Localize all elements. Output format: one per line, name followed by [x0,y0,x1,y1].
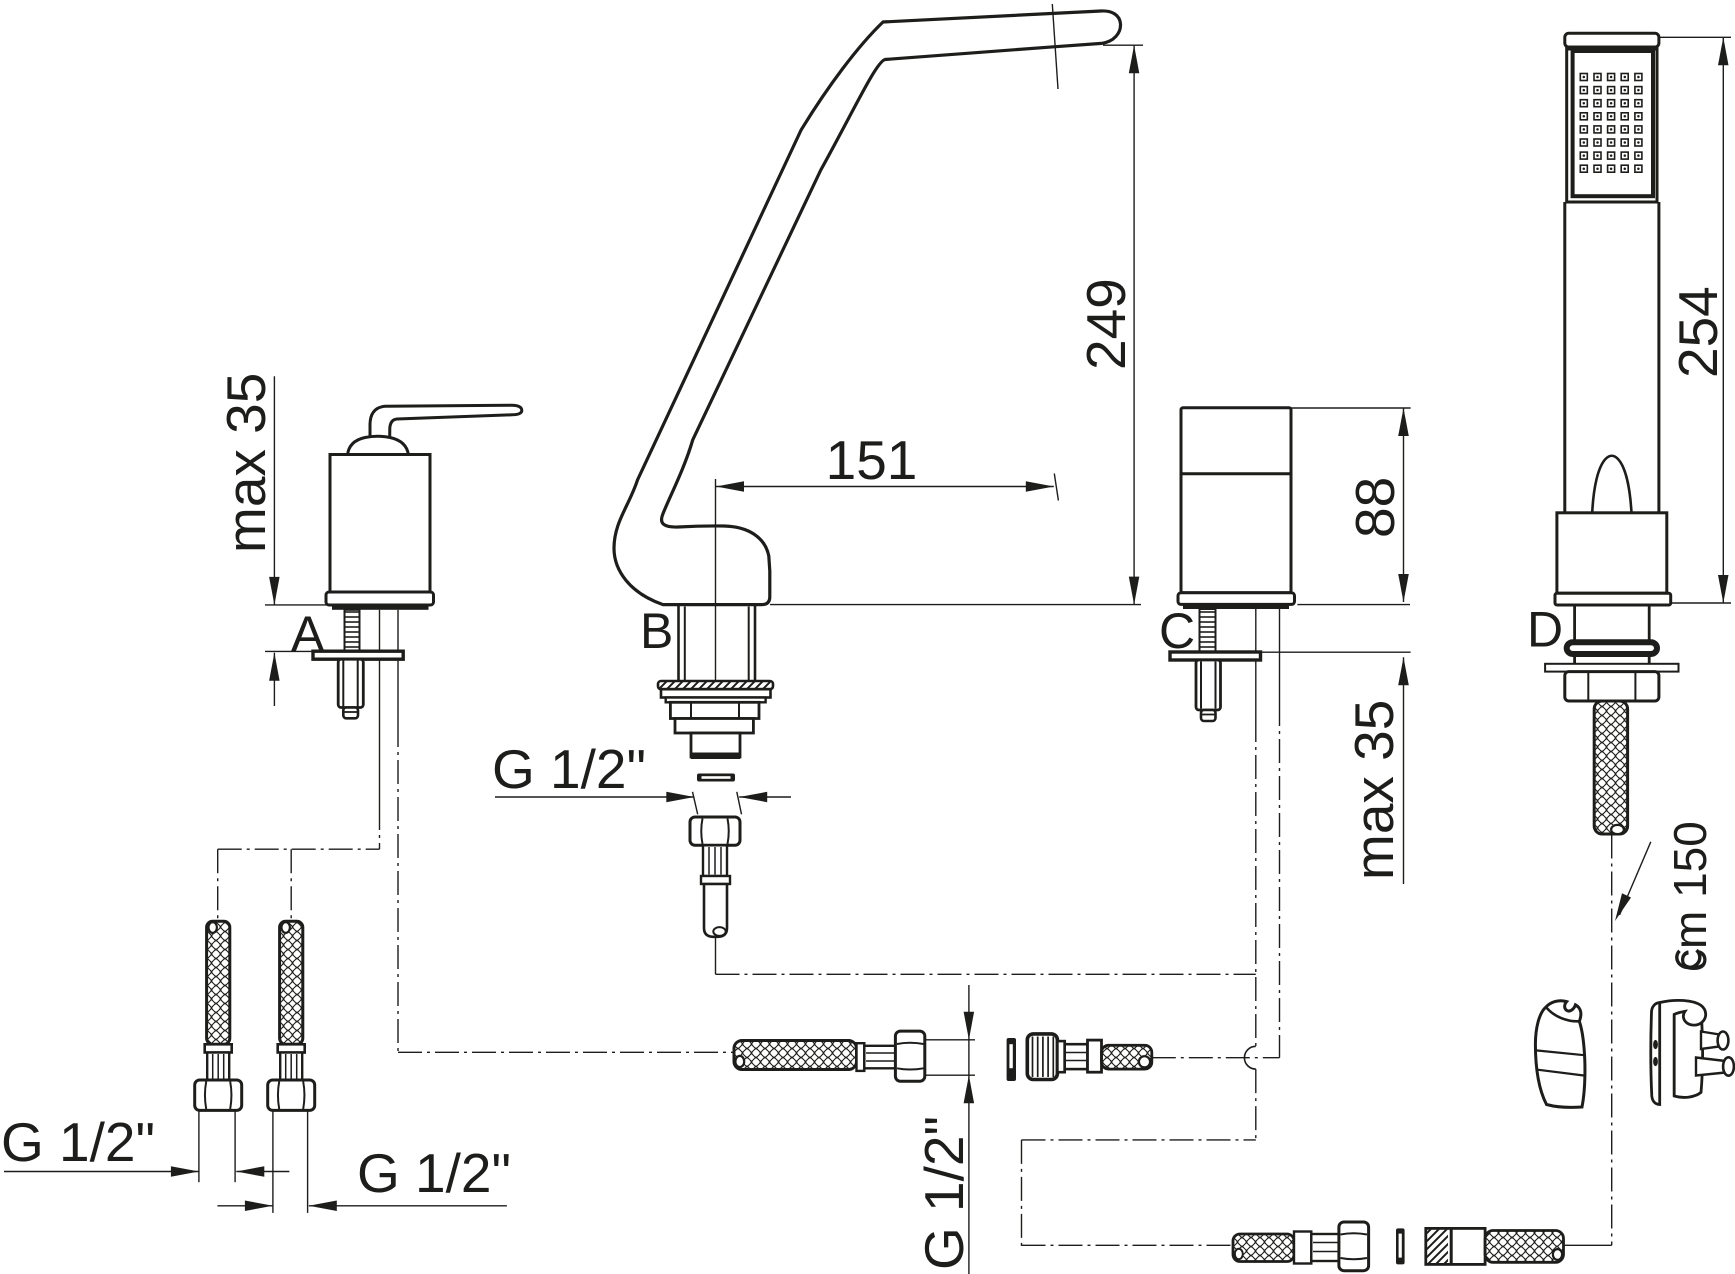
svg-text:A: A [291,606,325,662]
svg-text:cm 150: cm 150 [1664,821,1716,972]
svg-text:G 1/2": G 1/2" [913,1116,975,1270]
svg-text:max 35: max 35 [1343,700,1405,880]
svg-text:254: 254 [1667,286,1729,378]
svg-text:C: C [1159,603,1195,659]
svg-text:249: 249 [1075,278,1137,370]
svg-text:D: D [1527,602,1563,658]
svg-text:151: 151 [826,429,918,491]
svg-text:88: 88 [1344,477,1406,538]
svg-text:G 1/2": G 1/2" [492,738,646,800]
svg-text:G 1/2": G 1/2" [1,1111,155,1173]
svg-text:G 1/2": G 1/2" [357,1142,511,1204]
svg-text:max 35: max 35 [215,373,277,553]
svg-text:B: B [640,603,673,659]
